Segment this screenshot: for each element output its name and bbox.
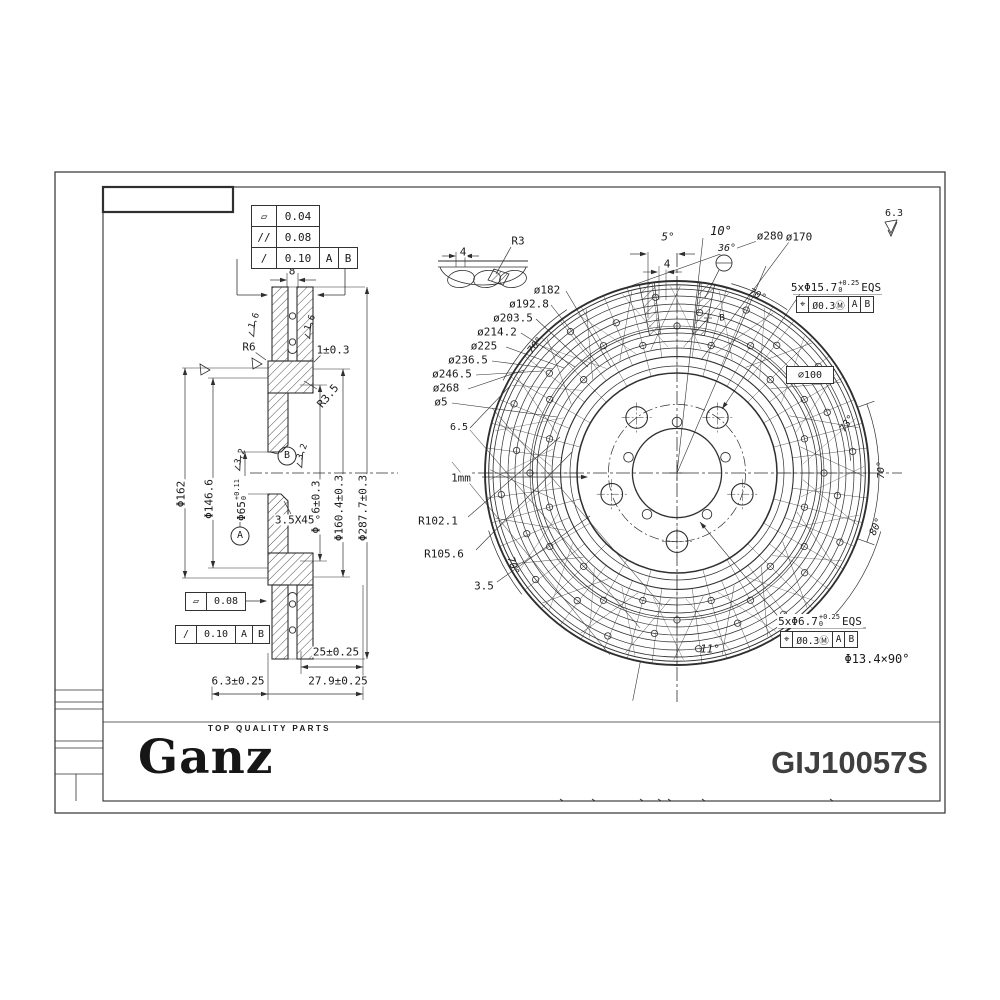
label-rough_16b: 1.6: [304, 314, 318, 332]
label-datum_a: A: [237, 531, 243, 541]
label-chamfer: 3.5X45°: [274, 515, 322, 526]
label-r6: R6: [241, 342, 256, 353]
label-eqs67: 5xΦ6.7+0.250EQS: [777, 614, 863, 628]
position-frame-pins: ⌖ Ø0.3Ⓜ A B: [781, 631, 858, 648]
runout-value: 0.10: [196, 625, 236, 644]
position-datum-a: A: [848, 296, 862, 313]
label-d2877: Φ287.7±0.3: [358, 474, 369, 542]
flatness-frame: ▱ 0.08: [186, 592, 246, 611]
eqs157-suffix: EQS: [861, 282, 881, 293]
label-rough_32b: 3.2: [296, 443, 310, 461]
position-frame-studs: ⌖ Ø0.3Ⓜ A B: [797, 296, 874, 313]
label-a73: 73°: [839, 414, 858, 435]
label-det_r3: R3: [510, 236, 525, 247]
eqs157-lower-tol: 0: [838, 287, 859, 294]
eqs67-value: 5xΦ6.7: [778, 616, 818, 627]
label-r1021: R102.1: [417, 516, 459, 527]
label-d25: 25±0.25: [312, 647, 360, 658]
label-a36: 36°: [717, 244, 737, 254]
label-a11: 11°: [700, 644, 720, 655]
dimension-labels: 81.61.6R61±0.3R3.53.23.2Φ65+0.110Φ146.6Φ…: [0, 0, 1000, 1000]
label-o2035: ø203.5: [492, 313, 534, 324]
flatness-value: 0.04: [276, 205, 320, 227]
runout-datum-a: A: [319, 247, 339, 269]
label-o2465: ø246.5: [431, 369, 473, 380]
label-det_4: 4: [459, 247, 468, 258]
flatness-icon: ▱: [185, 592, 207, 611]
label-o268: ø268: [432, 383, 461, 394]
d65-value: Φ65: [236, 501, 247, 521]
runout-icon: /: [251, 247, 277, 269]
label-f4: 4: [663, 259, 672, 270]
runout-frame: / 0.10 A B: [176, 625, 270, 644]
label-o2365: ø236.5: [447, 355, 489, 366]
label-mm1: 1mm: [450, 473, 472, 484]
label-a10: 10°: [709, 225, 733, 237]
label-a70ul: 70°: [526, 336, 545, 356]
runout-icon: /: [175, 625, 197, 644]
label-a70t: 70°: [747, 288, 768, 305]
label-r63: 6.3: [884, 209, 904, 219]
part-number: GIJ10057S: [771, 745, 928, 781]
label-s65: 6.5: [449, 423, 469, 433]
label-o182: ø182: [533, 285, 562, 296]
position-icon: ⌖: [780, 631, 793, 648]
position-icon: ⌖: [796, 296, 809, 313]
runout-datum-b: B: [252, 625, 270, 644]
label-eqs157: 5xΦ15.7+0.250EQS: [790, 280, 882, 294]
position-datum-b: B: [860, 296, 874, 313]
label-a70ll: 70°: [505, 556, 520, 576]
label-d170: ø170: [785, 232, 814, 243]
label-d1466: Φ146.6: [204, 478, 215, 520]
label-r1056: R105.6: [423, 549, 465, 560]
label-d1604: Φ160.4±0.3: [334, 474, 345, 542]
label-o2142: ø214.2: [476, 327, 518, 338]
runout-datum-a: A: [235, 625, 253, 644]
label-rough_16a: 1.6: [248, 312, 262, 330]
pcd-basic-dimension: ⌀100: [786, 366, 834, 384]
label-r35: R3.5: [315, 382, 340, 409]
label-d63: 6.3±0.25: [211, 676, 266, 687]
brand-name: Ganz: [138, 733, 331, 782]
label-gap_1: 1±0.3: [315, 345, 350, 356]
label-o225: ø225: [470, 341, 499, 352]
label-d280: ø280: [756, 231, 785, 242]
eqs67-suffix: EQS: [842, 616, 862, 627]
label-d65: Φ65+0.110: [234, 476, 248, 522]
position-tolerance: Ø0.3Ⓜ: [792, 631, 832, 648]
label-t35: 3.5: [473, 581, 495, 592]
tolerance-row-flatness: ▱ 0.04: [252, 206, 358, 227]
tolerance-row-runout: / 0.10 A B: [252, 248, 358, 269]
drawing-sheet: 81.61.6R61±0.3R3.53.23.2Φ65+0.110Φ146.6Φ…: [0, 0, 1000, 1000]
label-rough_32a: 3.2: [234, 448, 248, 466]
parallelism-value: 0.08: [276, 226, 320, 248]
label-a70r: 70°: [877, 461, 887, 479]
position-tolerance: Ø0.3Ⓜ: [808, 296, 848, 313]
label-a80: 80°: [869, 517, 886, 538]
position-datum-b: B: [844, 631, 858, 648]
parallelism-icon: //: [251, 226, 277, 248]
label-d279: 27.9±0.25: [307, 676, 369, 687]
label-d162: Φ162: [176, 480, 187, 509]
label-hub_b: B: [719, 315, 724, 324]
runout-value: 0.10: [276, 247, 320, 269]
label-o5: ø5: [433, 397, 448, 408]
eqs157-value: 5xΦ15.7: [791, 282, 837, 293]
label-d134: Φ13.4×90°: [843, 653, 910, 665]
position-datum-a: A: [832, 631, 846, 648]
label-datum_b: B: [284, 451, 290, 461]
eqs67-lower-tol: 0: [819, 621, 840, 628]
label-o1928: ø192.8: [508, 299, 550, 310]
d65-lower-tol: 0: [241, 479, 248, 500]
tolerance-stack: ▱ 0.04 // 0.08 / 0.10 A B: [252, 206, 358, 269]
brand-logo: TOP QUALITY PARTS Ganz: [138, 724, 331, 782]
tolerance-row-parallelism: // 0.08: [252, 227, 358, 248]
flatness-value: 0.08: [206, 592, 246, 611]
runout-datum-b: B: [338, 247, 358, 269]
label-a5: 5°: [660, 232, 675, 243]
flatness-icon: ▱: [251, 205, 277, 227]
